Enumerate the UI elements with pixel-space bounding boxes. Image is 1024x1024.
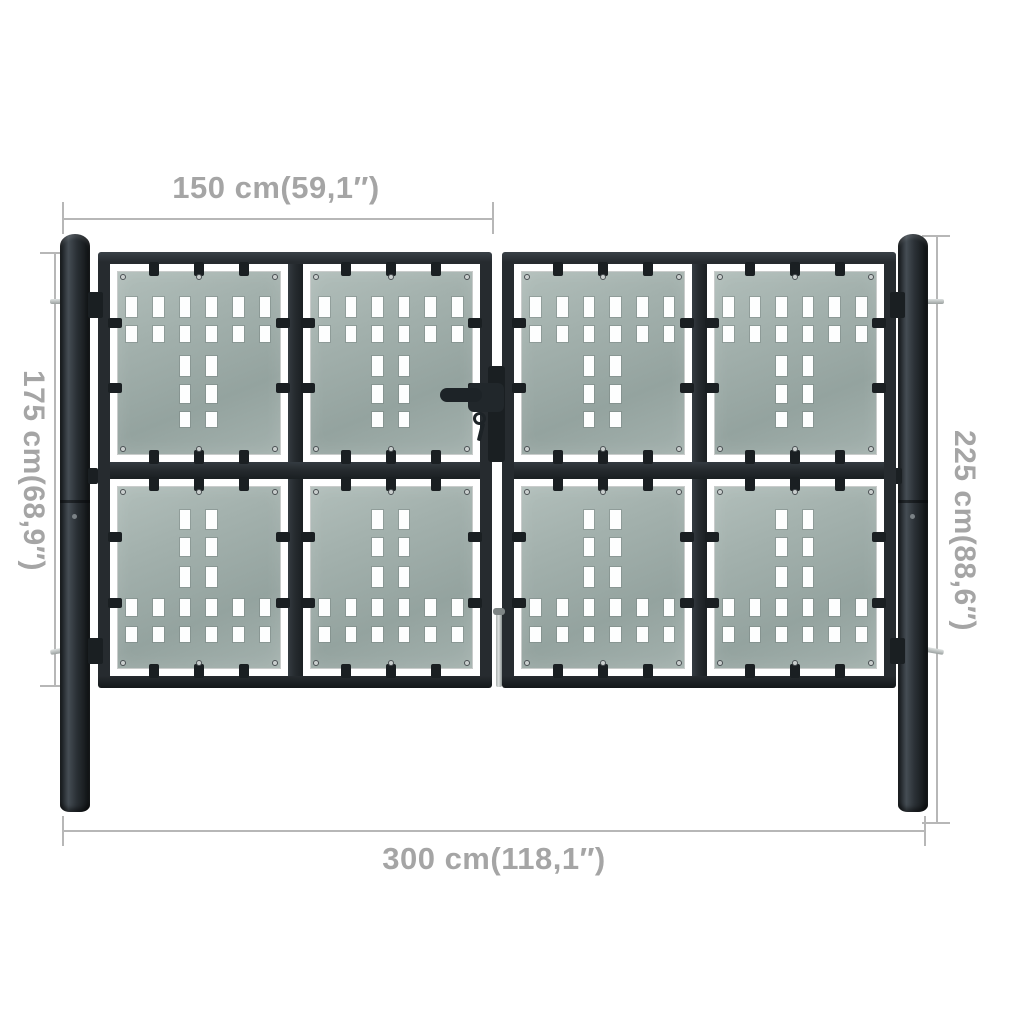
- panel-hole: [584, 567, 595, 587]
- dimension-tick: [62, 202, 64, 234]
- panel-screw: [313, 274, 319, 280]
- panel-screw: [676, 446, 682, 452]
- panel-hole: [372, 599, 383, 616]
- panel-hole: [233, 326, 244, 341]
- panel-screw: [120, 489, 126, 495]
- panel-hole: [637, 326, 648, 341]
- panel-clip: [745, 262, 755, 276]
- panel-hole: [233, 297, 244, 317]
- panel-hole: [399, 356, 410, 376]
- panel-clip: [341, 262, 351, 276]
- panel-clip: [431, 477, 441, 491]
- panel-hole: [856, 297, 867, 317]
- panel-hole: [776, 412, 787, 427]
- panel-hole: [206, 385, 217, 402]
- panel-hole: [153, 599, 164, 616]
- panel-clip: [790, 450, 800, 464]
- panel-hole: [776, 356, 787, 376]
- panel-hole: [723, 599, 734, 616]
- panel-clip: [108, 532, 122, 542]
- panel-hole: [776, 297, 787, 317]
- panel-clip: [386, 450, 396, 464]
- post-joint-seam: [898, 500, 928, 503]
- gate-panel: [118, 272, 280, 454]
- panel-hole: [206, 412, 217, 427]
- panel-hole: [664, 627, 675, 642]
- panel-hole: [664, 326, 675, 341]
- panel-clip: [643, 262, 653, 276]
- post-screw: [72, 514, 77, 519]
- panel-screw: [600, 489, 606, 495]
- panel-screw: [868, 274, 874, 280]
- panel-hole: [803, 385, 814, 402]
- panel-hole: [856, 599, 867, 616]
- panel-clip: [680, 318, 694, 328]
- panel-screw: [272, 489, 278, 495]
- panel-clip: [745, 477, 755, 491]
- panel-hole: [803, 538, 814, 556]
- panel-hole: [180, 538, 191, 556]
- leaf-inner: [110, 264, 480, 676]
- panel-screw: [196, 274, 202, 280]
- panel-clip: [149, 664, 159, 678]
- panel-hole: [425, 599, 436, 616]
- panel-hole: [452, 599, 463, 616]
- panel-hole: [803, 627, 814, 642]
- panel-clip: [643, 450, 653, 464]
- panel-clip: [872, 383, 886, 393]
- panel-hole: [372, 412, 383, 427]
- panel-hole: [399, 297, 410, 317]
- panel-screw: [272, 660, 278, 666]
- panel-hole: [126, 599, 137, 616]
- panel-clip: [276, 598, 290, 608]
- panel-hole: [180, 297, 191, 317]
- panel-clip: [680, 532, 694, 542]
- panel-hole: [452, 627, 463, 642]
- panel-hole: [637, 627, 648, 642]
- leaf-rail: [110, 462, 480, 479]
- panel-hole: [399, 627, 410, 642]
- drop-rod-knob: [493, 608, 505, 615]
- gate-panel: [715, 272, 877, 454]
- panel-clip: [431, 262, 441, 276]
- panel-screw: [464, 446, 470, 452]
- leaf-rail: [514, 462, 884, 479]
- panel-hole: [530, 599, 541, 616]
- panel-clip: [553, 477, 563, 491]
- panel-hole: [723, 627, 734, 642]
- panel-hole: [372, 356, 383, 376]
- panel-screw: [600, 274, 606, 280]
- panel-hole: [319, 326, 330, 341]
- panel-hole: [399, 412, 410, 427]
- panel-hole: [584, 326, 595, 341]
- panel-hole: [530, 326, 541, 341]
- panel-hole: [346, 627, 357, 642]
- panel-hole: [610, 385, 621, 402]
- panel-hole: [803, 567, 814, 587]
- panel-screw: [792, 489, 798, 495]
- panel-clip: [149, 262, 159, 276]
- panel-screw: [388, 489, 394, 495]
- panel-clip: [468, 532, 482, 542]
- panel-hole: [372, 627, 383, 642]
- panel-clip: [276, 383, 290, 393]
- panel-clip: [705, 532, 719, 542]
- panel-hole: [584, 599, 595, 616]
- panel-clip: [745, 664, 755, 678]
- panel-hole: [425, 326, 436, 341]
- panel-hole: [319, 627, 330, 642]
- dimension-label-top: 150 cm(59,1″): [76, 170, 476, 206]
- panel-clip: [341, 477, 351, 491]
- panel-clip: [512, 532, 526, 542]
- panel-screw: [196, 489, 202, 495]
- panel-clip: [239, 450, 249, 464]
- panel-hole: [530, 297, 541, 317]
- panel-clip: [468, 318, 482, 328]
- panel-hole: [610, 356, 621, 376]
- panel-hole: [584, 356, 595, 376]
- panel-hole: [180, 510, 191, 529]
- panel-clip: [431, 450, 441, 464]
- panel-hole: [180, 567, 191, 587]
- panel-hole: [637, 599, 648, 616]
- panel-screw: [717, 660, 723, 666]
- panel-hole: [206, 326, 217, 341]
- panel-hole: [399, 538, 410, 556]
- panel-hole: [803, 356, 814, 376]
- gate-leaf-left: [98, 252, 492, 688]
- panel-screw: [120, 446, 126, 452]
- gate-dimension-diagram: 150 cm(59,1″) 175 cm(68,9″) 225 cm(88,6″…: [0, 0, 1024, 1024]
- panel-hole: [829, 297, 840, 317]
- panel-hole: [584, 627, 595, 642]
- gate-panel: [522, 272, 684, 454]
- panel-screw: [464, 274, 470, 280]
- panel-hole: [723, 297, 734, 317]
- panel-hole: [153, 326, 164, 341]
- panel-hole: [637, 297, 648, 317]
- panel-hole: [803, 599, 814, 616]
- lock-handle: [440, 388, 482, 402]
- panel-clip: [512, 598, 526, 608]
- hinge-bracket: [890, 292, 905, 318]
- panel-screw: [120, 274, 126, 280]
- panel-screw: [196, 446, 202, 452]
- panel-clip: [386, 664, 396, 678]
- panel-clip: [194, 450, 204, 464]
- panel-clip: [108, 318, 122, 328]
- panel-hole: [776, 538, 787, 556]
- panel-clip: [194, 664, 204, 678]
- panel-hole: [829, 599, 840, 616]
- panel-hole: [399, 510, 410, 529]
- panel-hole: [530, 627, 541, 642]
- panel-hole: [180, 356, 191, 376]
- panel-hole: [610, 567, 621, 587]
- panel-hole: [399, 326, 410, 341]
- panel-clip: [341, 664, 351, 678]
- post-clamp: [88, 468, 98, 484]
- dimension-label-left: 175 cm(68,9″): [10, 253, 56, 687]
- panel-hole: [425, 297, 436, 317]
- panel-hole: [372, 326, 383, 341]
- panel-hole: [372, 538, 383, 556]
- panel-screw: [676, 660, 682, 666]
- panel-hole: [856, 627, 867, 642]
- panel-clip: [598, 664, 608, 678]
- dimension-tick: [924, 816, 926, 846]
- panel-hole: [803, 297, 814, 317]
- panel-clip: [680, 383, 694, 393]
- panel-clip: [108, 383, 122, 393]
- panel-hole: [776, 385, 787, 402]
- panel-hole: [829, 326, 840, 341]
- panel-clip: [108, 598, 122, 608]
- panel-screw: [868, 660, 874, 666]
- panel-screw: [272, 446, 278, 452]
- panel-hole: [233, 599, 244, 616]
- panel-screw: [524, 660, 530, 666]
- panel-hole: [319, 297, 330, 317]
- panel-clip: [239, 477, 249, 491]
- right-gate-post: [898, 234, 928, 812]
- post-screw: [910, 514, 915, 519]
- hinge-bracket: [88, 292, 103, 318]
- dimension-label-right: 225 cm(88,6″): [940, 236, 988, 824]
- panel-clip: [149, 477, 159, 491]
- panel-clip: [872, 532, 886, 542]
- panel-clip: [790, 664, 800, 678]
- panel-hole: [206, 538, 217, 556]
- panel-hole: [372, 297, 383, 317]
- panel-hole: [126, 627, 137, 642]
- panel-screw: [600, 660, 606, 666]
- panel-hole: [776, 326, 787, 341]
- drop-rod: [496, 612, 502, 687]
- panel-clip: [835, 664, 845, 678]
- panel-hole: [584, 412, 595, 427]
- panel-screw: [388, 446, 394, 452]
- panel-screw: [600, 446, 606, 452]
- panel-hole: [180, 326, 191, 341]
- panel-hole: [346, 326, 357, 341]
- panel-hole: [153, 627, 164, 642]
- panel-hole: [584, 385, 595, 402]
- panel-clip: [301, 598, 315, 608]
- panel-hole: [776, 627, 787, 642]
- gate-panel: [118, 487, 280, 669]
- panel-clip: [276, 318, 290, 328]
- lock-plate: [488, 366, 505, 462]
- panel-clip: [239, 664, 249, 678]
- panel-hole: [803, 326, 814, 341]
- panel-screw: [868, 446, 874, 452]
- panel-hole: [372, 510, 383, 529]
- panel-hole: [452, 326, 463, 341]
- dimension-label-bottom: 300 cm(118,1″): [294, 841, 694, 877]
- panel-hole: [803, 412, 814, 427]
- panel-clip: [468, 598, 482, 608]
- panel-screw: [717, 489, 723, 495]
- panel-hole: [610, 627, 621, 642]
- panel-hole: [180, 627, 191, 642]
- panel-clip: [553, 262, 563, 276]
- panel-hole: [557, 599, 568, 616]
- panel-hole: [206, 356, 217, 376]
- panel-clip: [835, 477, 845, 491]
- hinge-bracket: [88, 638, 103, 664]
- panel-screw: [676, 489, 682, 495]
- gate-leaf-right: [502, 252, 896, 688]
- panel-screw: [717, 274, 723, 280]
- panel-clip: [301, 532, 315, 542]
- panel-clip: [680, 598, 694, 608]
- panel-hole: [610, 297, 621, 317]
- panel-hole: [126, 297, 137, 317]
- hinge-bracket: [890, 638, 905, 664]
- panel-screw: [313, 446, 319, 452]
- panel-clip: [705, 383, 719, 393]
- panel-hole: [750, 627, 761, 642]
- panel-hole: [750, 599, 761, 616]
- panel-screw: [313, 660, 319, 666]
- panel-screw: [524, 446, 530, 452]
- panel-hole: [776, 599, 787, 616]
- panel-hole: [610, 599, 621, 616]
- panel-hole: [452, 297, 463, 317]
- panel-screw: [196, 660, 202, 666]
- panel-hole: [126, 326, 137, 341]
- gate-panel: [522, 487, 684, 669]
- post-joint-seam: [60, 500, 90, 503]
- panel-hole: [180, 599, 191, 616]
- panel-clip: [149, 450, 159, 464]
- panel-hole: [260, 627, 271, 642]
- panel-hole: [206, 567, 217, 587]
- panel-clip: [835, 450, 845, 464]
- panel-hole: [610, 510, 621, 529]
- dimension-tick: [62, 816, 64, 846]
- panel-hole: [610, 538, 621, 556]
- panel-clip: [553, 450, 563, 464]
- dimension-tick: [492, 202, 494, 234]
- panel-screw: [120, 660, 126, 666]
- panel-clip: [553, 664, 563, 678]
- panel-clip: [643, 664, 653, 678]
- gate-panel: [311, 487, 473, 669]
- panel-hole: [723, 326, 734, 341]
- panel-hole: [557, 326, 568, 341]
- panel-clip: [512, 318, 526, 328]
- panel-hole: [180, 412, 191, 427]
- panel-hole: [346, 297, 357, 317]
- panel-hole: [346, 599, 357, 616]
- panel-hole: [776, 567, 787, 587]
- panel-hole: [180, 385, 191, 402]
- left-gate-post: [60, 234, 90, 812]
- panel-clip: [643, 477, 653, 491]
- panel-screw: [524, 489, 530, 495]
- dimension-line-top: [62, 218, 494, 220]
- panel-screw: [464, 660, 470, 666]
- panel-hole: [557, 627, 568, 642]
- panel-hole: [584, 538, 595, 556]
- dimension-line-bottom: [62, 830, 926, 832]
- panel-clip: [745, 450, 755, 464]
- panel-hole: [399, 599, 410, 616]
- panel-clip: [301, 318, 315, 328]
- panel-clip: [301, 383, 315, 393]
- panel-hole: [750, 297, 761, 317]
- panel-hole: [803, 510, 814, 529]
- panel-hole: [319, 599, 330, 616]
- gate-panel: [311, 272, 473, 454]
- panel-clip: [705, 318, 719, 328]
- panel-hole: [584, 510, 595, 529]
- panel-hole: [750, 326, 761, 341]
- panel-screw: [676, 274, 682, 280]
- panel-hole: [372, 567, 383, 587]
- panel-screw: [388, 274, 394, 280]
- gate-panel: [715, 487, 877, 669]
- panel-hole: [206, 297, 217, 317]
- panel-hole: [233, 627, 244, 642]
- panel-clip: [598, 450, 608, 464]
- panel-hole: [260, 297, 271, 317]
- panel-clip: [239, 262, 249, 276]
- panel-hole: [557, 297, 568, 317]
- panel-clip: [705, 598, 719, 608]
- panel-screw: [792, 274, 798, 280]
- panel-clip: [276, 532, 290, 542]
- panel-hole: [425, 627, 436, 642]
- panel-hole: [206, 627, 217, 642]
- panel-clip: [872, 598, 886, 608]
- panel-hole: [399, 385, 410, 402]
- panel-screw: [464, 489, 470, 495]
- panel-hole: [206, 510, 217, 529]
- panel-hole: [372, 385, 383, 402]
- panel-screw: [524, 274, 530, 280]
- panel-hole: [856, 326, 867, 341]
- panel-clip: [431, 664, 441, 678]
- panel-hole: [664, 297, 675, 317]
- panel-hole: [664, 599, 675, 616]
- panel-screw: [792, 446, 798, 452]
- panel-hole: [610, 412, 621, 427]
- panel-hole: [610, 326, 621, 341]
- panel-hole: [260, 599, 271, 616]
- panel-screw: [272, 274, 278, 280]
- panel-hole: [260, 326, 271, 341]
- panel-screw: [717, 446, 723, 452]
- panel-hole: [206, 599, 217, 616]
- panel-hole: [584, 297, 595, 317]
- panel-hole: [153, 297, 164, 317]
- panel-clip: [341, 450, 351, 464]
- dimension-line-right: [936, 236, 938, 824]
- panel-hole: [776, 510, 787, 529]
- panel-hole: [399, 567, 410, 587]
- panel-clip: [872, 318, 886, 328]
- panel-clip: [512, 383, 526, 393]
- panel-clip: [835, 262, 845, 276]
- leaf-inner: [514, 264, 884, 676]
- panel-screw: [313, 489, 319, 495]
